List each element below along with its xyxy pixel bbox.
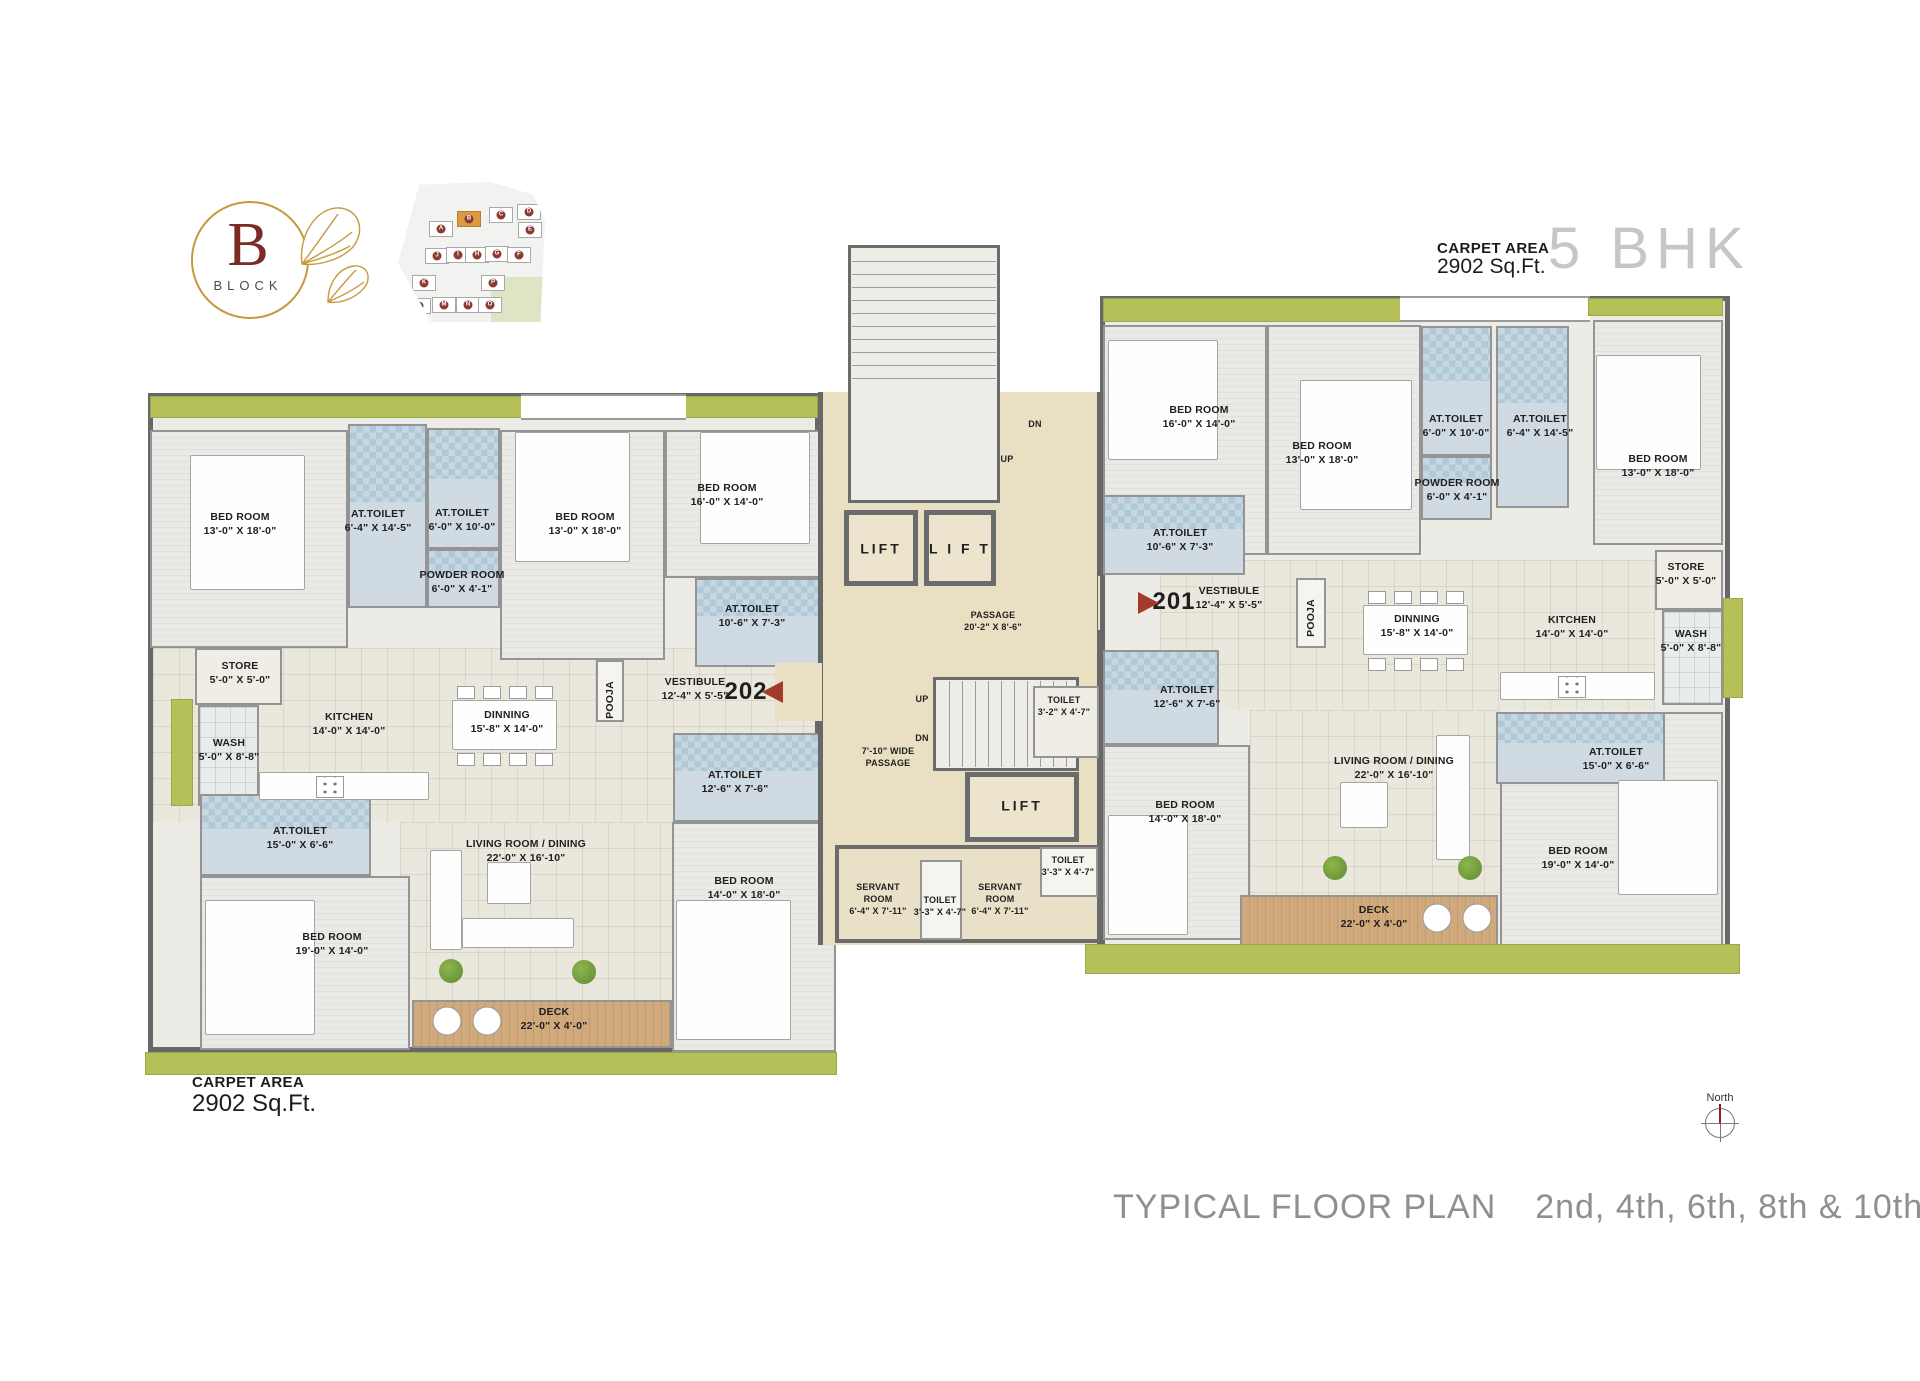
staircase-top-treads (852, 249, 996, 389)
plant-icon (1323, 856, 1347, 880)
room-wash-201 (1662, 610, 1723, 705)
sofa (430, 850, 462, 950)
room-at-toilet-202-4 (673, 733, 822, 822)
deck-chair-icon (1423, 904, 1452, 933)
bed-furniture (1108, 815, 1188, 935)
unit-201-top-window (1400, 296, 1590, 322)
unit-type-title: 5 BHK (1548, 215, 1751, 282)
sofa (1436, 735, 1470, 860)
kitchen-hob-icon (316, 776, 344, 798)
lift-2 (924, 510, 996, 586)
north-compass-icon (1705, 1108, 1735, 1138)
room-wash-202 (198, 705, 259, 806)
kitchen-counter (259, 772, 429, 800)
unit-201-bottom-lawn (1085, 944, 1740, 974)
dining-chair (1420, 658, 1438, 671)
unit-202-top-window (521, 394, 686, 420)
dining-chair (1446, 658, 1464, 671)
unit-202-top-planter (150, 396, 818, 418)
room-at-toilet-201-1 (1421, 326, 1492, 456)
plant-icon (572, 960, 596, 984)
dining-chair (509, 686, 527, 699)
dining-chair (483, 753, 501, 766)
bed-furniture (515, 432, 630, 562)
room-at-toilet-202-5 (200, 794, 371, 876)
room-toilet-servant-2 (1040, 847, 1098, 897)
dining-chair (509, 753, 527, 766)
unit-201-side-planter (1723, 598, 1743, 698)
room-pooja-202 (596, 660, 624, 722)
dining-chair (457, 753, 475, 766)
plan-title-text: TYPICAL FLOOR PLAN (1113, 1188, 1496, 1226)
site-map-block-G: G (485, 246, 509, 262)
north-indicator: North (1692, 1092, 1748, 1138)
room-store-202 (195, 648, 282, 705)
unit-201-top-planter-1 (1103, 298, 1403, 322)
footer-carpet-area-value: 2902 Sq.Ft. (192, 1090, 316, 1118)
room-toilet-core (1033, 686, 1099, 758)
dining-chair (1420, 591, 1438, 604)
deck-chair-icon (473, 1007, 502, 1036)
room-at-toilet-202-3 (695, 578, 820, 667)
site-map-block-E: E (518, 222, 542, 238)
dining-chair (457, 686, 475, 699)
plan-floors-text: 2nd, 4th, 6th, 8th & 10th (1535, 1188, 1920, 1226)
room-at-toilet-201-3 (1103, 495, 1245, 575)
plan-title: TYPICAL FLOOR PLAN 2nd, 4th, 6th, 8th & … (1113, 1188, 1920, 1227)
room-toilet-servant-1 (920, 860, 962, 940)
sofa (462, 918, 574, 948)
unit-201-top-planter-2 (1588, 298, 1723, 316)
dining-chair (535, 753, 553, 766)
site-map-block-D: D (517, 204, 541, 220)
room-store-201 (1655, 550, 1723, 610)
dining-chair (1446, 591, 1464, 604)
site-key-map: ABCDEJIHGFKPLMNO (398, 182, 548, 322)
site-map-block-F: F (507, 247, 531, 263)
deck-chair-icon (433, 1007, 462, 1036)
entry-arrow-201 (1138, 592, 1159, 614)
room-powder-202 (427, 549, 500, 608)
entry-arrow-202 (762, 681, 783, 703)
lift-3 (965, 772, 1079, 842)
bed-furniture (205, 900, 315, 1035)
north-needle (1719, 1104, 1721, 1123)
plant-icon (1458, 856, 1482, 880)
room-at-toilet-202-2 (427, 428, 500, 549)
room-at-toilet-202-1 (348, 424, 427, 608)
dining-chair (483, 686, 501, 699)
bed-furniture (1300, 380, 1412, 510)
lift-1 (844, 510, 918, 586)
room-at-toilet-201-5 (1496, 712, 1665, 784)
coffee-table (487, 862, 531, 904)
deck-chair-icon (1463, 904, 1492, 933)
dining-chair (1368, 591, 1386, 604)
bed-furniture (1108, 340, 1218, 460)
site-map-block-A: A (429, 221, 453, 237)
ginkgo-leaf-icon (288, 198, 374, 310)
bed-furniture (676, 900, 791, 1040)
room-at-toilet-201-4 (1103, 650, 1219, 745)
plant-icon (439, 959, 463, 983)
unit-202-bottom-lawn (145, 1052, 837, 1075)
dining-chair (1394, 591, 1412, 604)
bed-furniture (190, 455, 305, 590)
footer-carpet-area-label: CARPET AREA (192, 1074, 304, 1091)
room-at-toilet-201-2 (1496, 326, 1569, 508)
dining-table (1363, 605, 1468, 655)
site-map-block-P: P (481, 275, 505, 291)
dining-table (452, 700, 557, 750)
room-pooja-201 (1296, 578, 1326, 648)
kitchen-hob-icon (1558, 676, 1586, 698)
dining-chair (1368, 658, 1386, 671)
dining-chair (535, 686, 553, 699)
site-map-block-M: M (432, 297, 456, 313)
site-map-block-O: O (478, 297, 502, 313)
bed-furniture (1596, 355, 1701, 470)
site-map-block-N: N (456, 297, 480, 313)
bed-furniture (700, 432, 810, 544)
header-carpet-area-value: 2902 Sq.Ft. (1437, 255, 1546, 279)
unit-202-side-planter (171, 699, 193, 806)
north-label: North (1692, 1092, 1748, 1104)
coffee-table (1340, 782, 1388, 828)
room-powder-201 (1421, 456, 1492, 520)
site-map-block-L: L (407, 298, 431, 314)
bed-furniture (1618, 780, 1718, 895)
deck-201 (1240, 895, 1498, 947)
site-map-block-B: B (457, 211, 481, 227)
site-map-block-K: K (412, 275, 436, 291)
dining-chair (1394, 658, 1412, 671)
site-map-block-C: C (489, 207, 513, 223)
